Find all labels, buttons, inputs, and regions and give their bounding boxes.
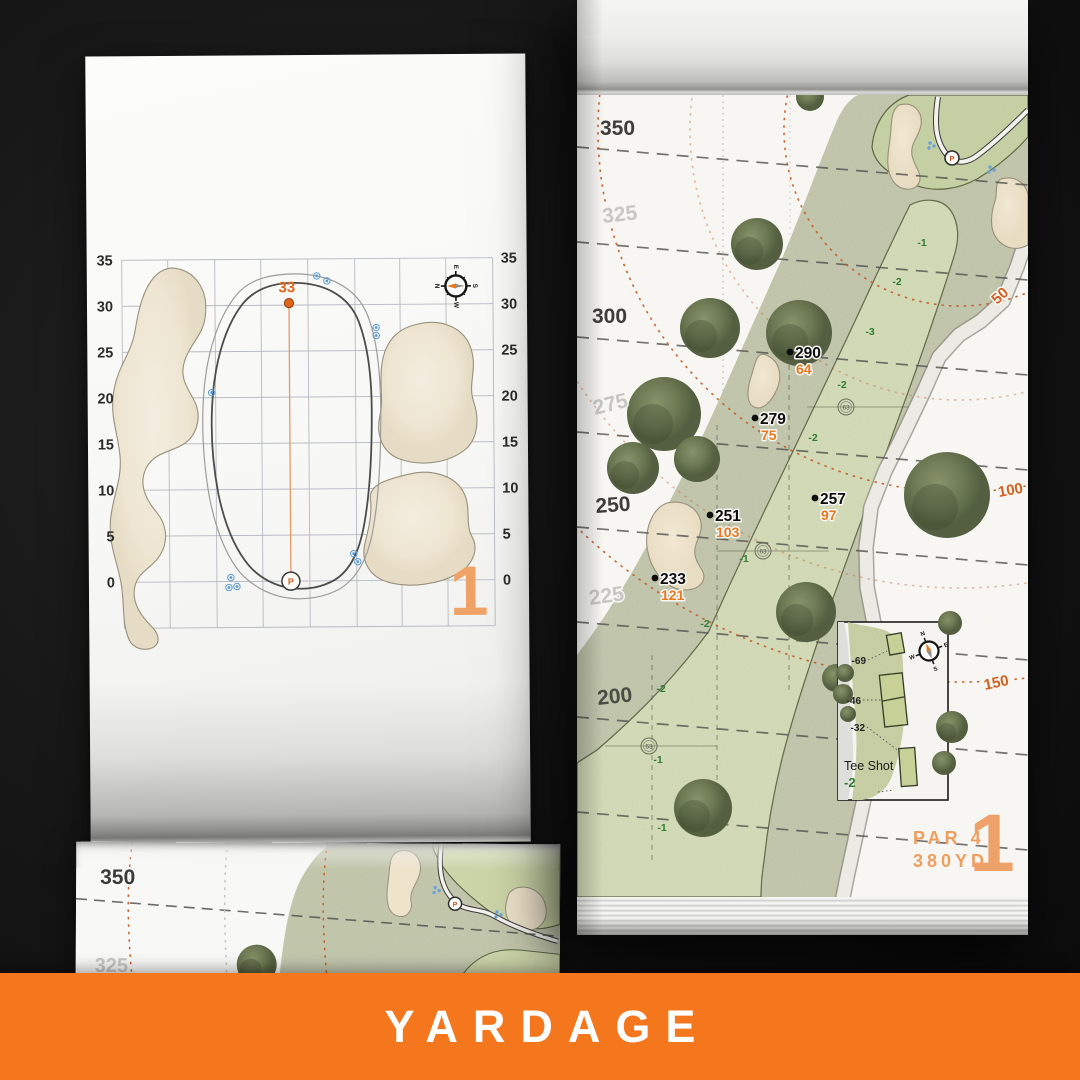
tree	[776, 582, 836, 642]
depth-top-dot	[284, 298, 293, 307]
bunker-right-top	[378, 322, 477, 463]
svg-text:-1: -1	[917, 237, 926, 249]
stacked-pages-edge	[577, 897, 1028, 935]
svg-text:-2: -2	[656, 683, 665, 695]
sprinkler-63-icon: 63	[641, 738, 657, 754]
svg-text:225: 225	[587, 582, 625, 610]
svg-text:63: 63	[759, 548, 767, 555]
svg-text:279: 279	[760, 411, 786, 428]
svg-text:P: P	[949, 154, 954, 163]
svg-text:-2: -2	[700, 618, 709, 630]
svg-text:-2: -2	[892, 276, 901, 288]
sprinkler-icon	[226, 584, 232, 590]
pin-entry-label: P	[453, 902, 458, 909]
svg-text:121: 121	[661, 587, 685, 603]
hole-number: 1	[969, 798, 1015, 889]
svg-text:-1: -1	[657, 822, 666, 834]
svg-text:15: 15	[502, 435, 518, 451]
sprinkler-63-icon: 63	[755, 543, 771, 559]
tree	[936, 711, 968, 743]
svg-text:290: 290	[795, 345, 821, 362]
svg-text:W: W	[452, 302, 459, 309]
svg-text:10: 10	[98, 483, 114, 499]
tree	[674, 436, 720, 482]
svg-text:25: 25	[501, 343, 517, 359]
svg-text:97: 97	[821, 507, 837, 523]
pin-entry-label: P	[288, 577, 294, 587]
svg-text:63: 63	[645, 743, 653, 750]
tree	[607, 442, 659, 494]
svg-text:-1: -1	[653, 754, 662, 766]
tree	[731, 218, 783, 270]
svg-text:-2: -2	[837, 379, 846, 391]
green-depth-measure: 33 P	[278, 279, 300, 590]
hole-number: 1	[449, 552, 488, 630]
green-detail-map: 33 P 35 30 25 20 15 10 5 0	[85, 53, 530, 844]
svg-text:350: 350	[600, 117, 635, 140]
svg-text:35: 35	[96, 253, 112, 269]
svg-text:103: 103	[716, 524, 740, 540]
tee-inset-title: Tee Shot	[844, 759, 894, 773]
tree	[938, 611, 962, 635]
axis-labels-left: 35 30 25 20 15 10 5 0	[96, 253, 114, 591]
tree	[680, 298, 740, 358]
svg-text:250: 250	[595, 493, 632, 518]
svg-text:300: 300	[592, 305, 627, 328]
distance-tick: 350	[100, 866, 135, 889]
sprinkler-icon	[228, 574, 234, 580]
svg-text:S: S	[471, 284, 478, 289]
axis-labels-right: 35 30 25 20 15 10 5 0	[501, 251, 519, 589]
folded-page-preview: P 350 325	[76, 842, 561, 977]
svg-text:251: 251	[715, 508, 741, 525]
svg-text:20: 20	[502, 389, 518, 405]
tree	[904, 452, 990, 538]
yardage-banner: YARDAGE	[0, 973, 1080, 1080]
svg-text:N: N	[433, 284, 440, 289]
greenside-bunkers	[108, 266, 478, 650]
svg-text:30: 30	[97, 299, 113, 315]
svg-text:E: E	[452, 265, 459, 270]
banner-title: YARDAGE	[385, 1001, 711, 1053]
tee-inset-elevation: -2	[844, 775, 856, 790]
svg-text:-32: -32	[851, 723, 866, 734]
svg-text:257: 257	[820, 491, 846, 508]
bunker-left	[108, 268, 208, 650]
green-detail-page: 33 P 35 30 25 20 15 10 5 0	[85, 53, 530, 844]
svg-text:35: 35	[501, 251, 517, 267]
compass-icon: N E S W	[433, 265, 478, 309]
svg-text:64: 64	[796, 361, 812, 377]
sprinkler-icon	[355, 558, 361, 564]
page-top-curl	[577, 0, 1028, 95]
svg-text:0: 0	[503, 573, 511, 589]
sprinkler-icon	[373, 324, 379, 330]
svg-text:5: 5	[503, 527, 511, 543]
tee-shot-inset: -69 -46 -32 Tee Shot -2 N E S W	[833, 622, 956, 800]
pin-entry-marker: P	[945, 151, 959, 165]
svg-text:-2: -2	[808, 432, 817, 444]
svg-text:5: 5	[106, 529, 114, 545]
hole-map-page: 63 63 63 -1 -2 -3 -2 -2 -1 -2 -2 -1 -1	[577, 0, 1028, 935]
svg-text:-3: -3	[865, 326, 874, 338]
svg-text:10: 10	[502, 481, 518, 497]
green-depth-label: 33	[278, 279, 295, 296]
tree	[674, 779, 732, 837]
svg-text:-69: -69	[852, 656, 867, 667]
green-edge-line	[211, 282, 373, 589]
svg-text:233: 233	[660, 571, 686, 588]
svg-text:15: 15	[98, 437, 114, 453]
svg-text:30: 30	[501, 297, 517, 313]
svg-text:-46: -46	[847, 696, 862, 707]
svg-text:63: 63	[842, 404, 850, 411]
svg-text:25: 25	[97, 345, 113, 361]
svg-text:200: 200	[596, 683, 633, 710]
svg-text:0: 0	[107, 575, 115, 591]
svg-text:325: 325	[601, 201, 639, 228]
sprinkler-icon	[234, 583, 240, 589]
svg-text:-1: -1	[739, 553, 748, 565]
folded-page-map: P 350 325	[76, 842, 561, 977]
svg-text:75: 75	[761, 427, 777, 443]
sprinkler-63-icon: 63	[838, 399, 854, 415]
hole-map: 63 63 63 -1 -2 -3 -2 -2 -1 -2 -2 -1 -1	[577, 95, 1028, 897]
tree	[932, 751, 956, 775]
svg-text:20: 20	[97, 391, 113, 407]
